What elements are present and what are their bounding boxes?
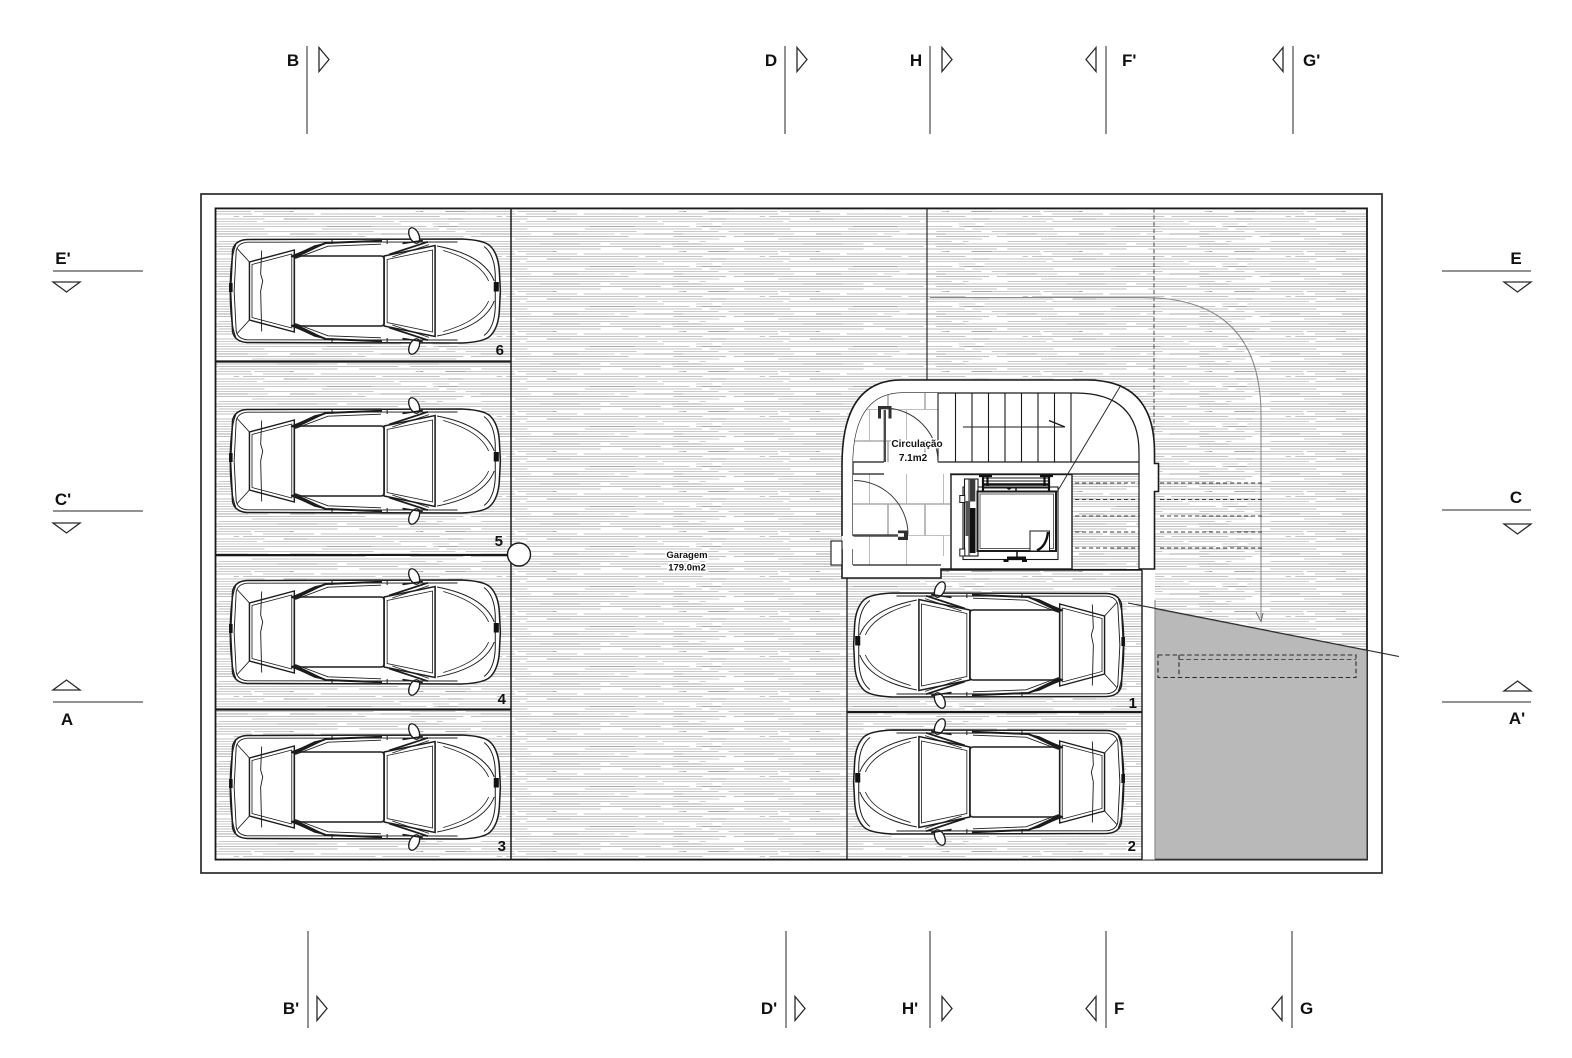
svg-text:G: G	[1300, 999, 1313, 1018]
svg-text:3: 3	[498, 838, 506, 855]
svg-text:E': E'	[55, 249, 70, 268]
svg-text:E: E	[1510, 249, 1521, 268]
svg-text:D': D'	[761, 999, 777, 1018]
svg-text:Circulação: Circulação	[891, 439, 942, 450]
svg-text:6: 6	[496, 342, 504, 359]
svg-text:B': B'	[283, 999, 299, 1018]
svg-text:Garagem: Garagem	[666, 550, 707, 561]
svg-text:C: C	[1510, 488, 1522, 507]
svg-text:179.0m2: 179.0m2	[668, 563, 706, 574]
svg-text:5: 5	[495, 533, 503, 550]
svg-text:4: 4	[498, 691, 507, 708]
svg-text:D: D	[765, 51, 777, 70]
svg-text:A': A'	[1509, 709, 1525, 728]
svg-text:G': G'	[1303, 51, 1320, 70]
svg-text:F: F	[1114, 999, 1124, 1018]
svg-text:A: A	[61, 710, 73, 729]
svg-text:B: B	[287, 51, 299, 70]
svg-text:2: 2	[1128, 838, 1136, 855]
svg-text:1: 1	[1129, 695, 1137, 712]
svg-text:F': F'	[1122, 51, 1136, 70]
svg-text:7.1m2: 7.1m2	[899, 453, 928, 464]
svg-text:H: H	[910, 51, 922, 70]
svg-text:H': H'	[902, 999, 918, 1018]
svg-text:C': C'	[55, 490, 71, 509]
